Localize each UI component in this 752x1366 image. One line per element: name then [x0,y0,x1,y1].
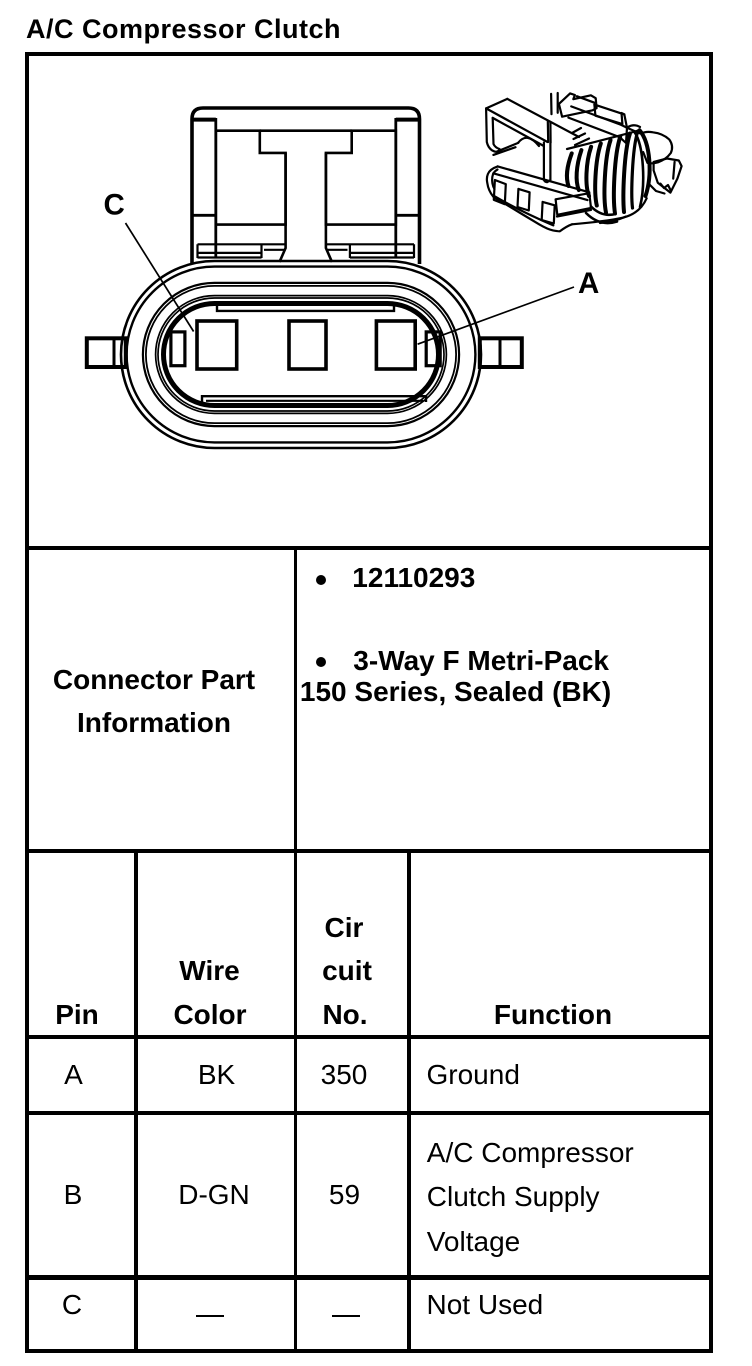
svg-text:A: A [578,267,599,300]
svg-text:C: C [104,189,125,222]
